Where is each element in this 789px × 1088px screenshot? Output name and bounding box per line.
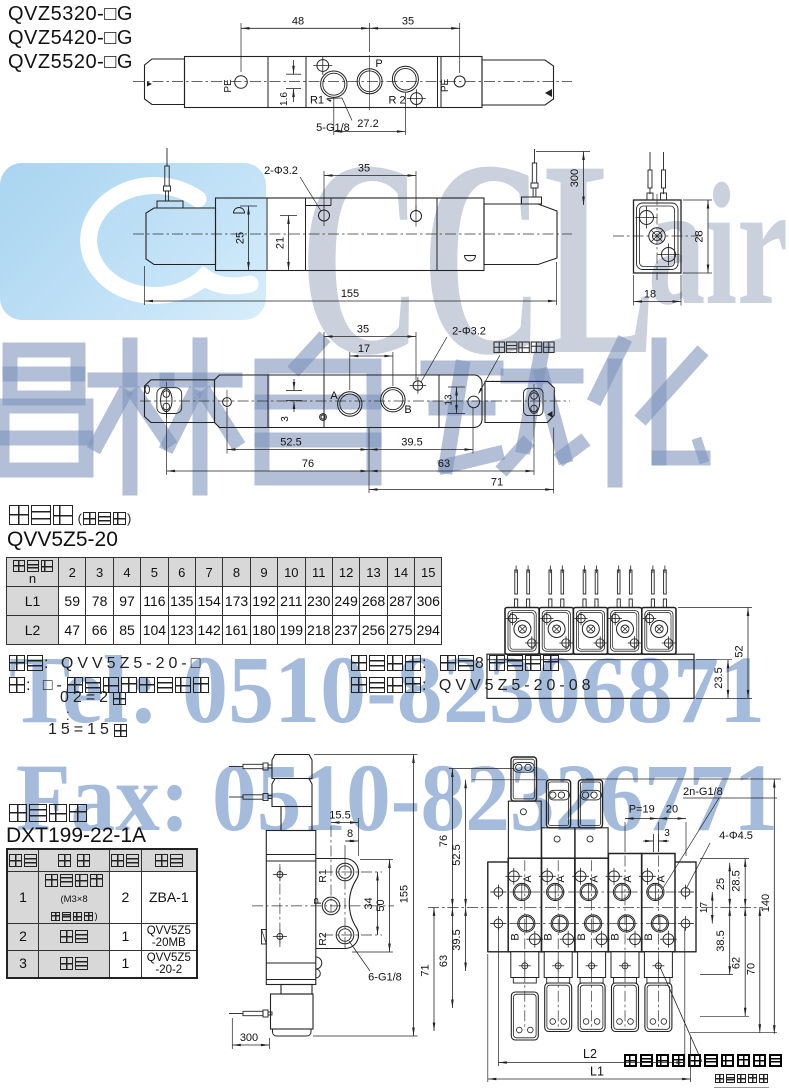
svg-text:15.5: 15.5 <box>329 810 350 822</box>
svg-text:P: P <box>312 897 324 904</box>
svg-text:35: 35 <box>357 324 369 336</box>
svg-text:P: P <box>375 58 382 70</box>
svg-text:155: 155 <box>399 885 411 903</box>
svg-text:52.5: 52.5 <box>280 437 301 449</box>
svg-text:L2: L2 <box>583 1047 597 1061</box>
svg-text:34: 34 <box>363 897 375 909</box>
svg-text:17: 17 <box>699 902 710 914</box>
svg-text:P=19: P=19 <box>629 804 655 816</box>
svg-text:50: 50 <box>375 899 387 911</box>
svg-text:B: B <box>543 933 555 940</box>
svg-text:2-Φ3.2: 2-Φ3.2 <box>264 165 298 177</box>
svg-text:4-Φ4.5: 4-Φ4.5 <box>719 830 753 842</box>
svg-text:39.5: 39.5 <box>451 929 463 950</box>
svg-text:35: 35 <box>358 163 370 175</box>
svg-text:71: 71 <box>420 964 432 976</box>
svg-text:R1: R1 <box>310 95 324 107</box>
svg-text:28.5: 28.5 <box>731 870 743 891</box>
svg-text:71: 71 <box>491 477 503 489</box>
svg-text:76: 76 <box>302 458 314 470</box>
svg-text:R1: R1 <box>317 869 329 883</box>
svg-text:70: 70 <box>745 963 757 975</box>
svg-text:18: 18 <box>644 289 656 301</box>
svg-text:155: 155 <box>341 288 359 300</box>
svg-text:13: 13 <box>444 394 455 406</box>
svg-text:B: B <box>576 933 588 940</box>
svg-text:8: 8 <box>347 828 353 840</box>
svg-text:B: B <box>610 933 622 940</box>
svg-text:L1: L1 <box>590 1065 604 1079</box>
svg-text:27.2: 27.2 <box>357 118 378 130</box>
svg-text:5-G1/8: 5-G1/8 <box>316 122 350 134</box>
svg-text:52.5: 52.5 <box>451 844 463 865</box>
svg-text:3: 3 <box>664 828 670 839</box>
svg-text:6-G1/8: 6-G1/8 <box>368 972 402 984</box>
svg-text:20: 20 <box>666 804 678 816</box>
svg-text:300: 300 <box>569 169 581 187</box>
svg-text:38.5: 38.5 <box>715 930 727 951</box>
svg-text:R 2: R 2 <box>388 95 405 107</box>
svg-text:76: 76 <box>438 835 450 847</box>
svg-text:17: 17 <box>358 343 370 355</box>
svg-text:35: 35 <box>402 16 414 28</box>
svg-text:48: 48 <box>292 16 304 28</box>
svg-text:A: A <box>330 390 338 402</box>
svg-text:2n-G1/8: 2n-G1/8 <box>683 786 723 798</box>
svg-text:A: A <box>589 875 601 883</box>
svg-text:63: 63 <box>438 458 450 470</box>
svg-text:PE: PE <box>223 79 234 93</box>
svg-text:52: 52 <box>734 645 746 657</box>
svg-text:3: 3 <box>280 416 291 422</box>
svg-text:63: 63 <box>438 955 450 967</box>
svg-text:1.6: 1.6 <box>279 92 290 106</box>
svg-text:A: A <box>622 875 634 883</box>
svg-text:A: A <box>655 875 667 883</box>
svg-text:300: 300 <box>240 1032 258 1044</box>
svg-text:140: 140 <box>760 894 772 912</box>
svg-text:A: A <box>555 875 567 883</box>
svg-text:21: 21 <box>275 237 287 249</box>
svg-text:B: B <box>643 933 655 940</box>
svg-text:25: 25 <box>235 232 247 244</box>
svg-text:R2: R2 <box>317 932 329 946</box>
svg-text:25: 25 <box>715 878 727 890</box>
svg-text:B: B <box>404 404 411 416</box>
svg-text:62: 62 <box>731 957 743 969</box>
svg-text:B: B <box>509 933 521 940</box>
svg-text:2-Φ3.2: 2-Φ3.2 <box>452 326 486 338</box>
svg-text:28: 28 <box>694 230 706 242</box>
svg-text:A: A <box>522 875 534 883</box>
svg-text:PE: PE <box>440 79 451 93</box>
svg-text:23.5: 23.5 <box>713 667 725 688</box>
svg-text:39.5: 39.5 <box>401 437 422 449</box>
